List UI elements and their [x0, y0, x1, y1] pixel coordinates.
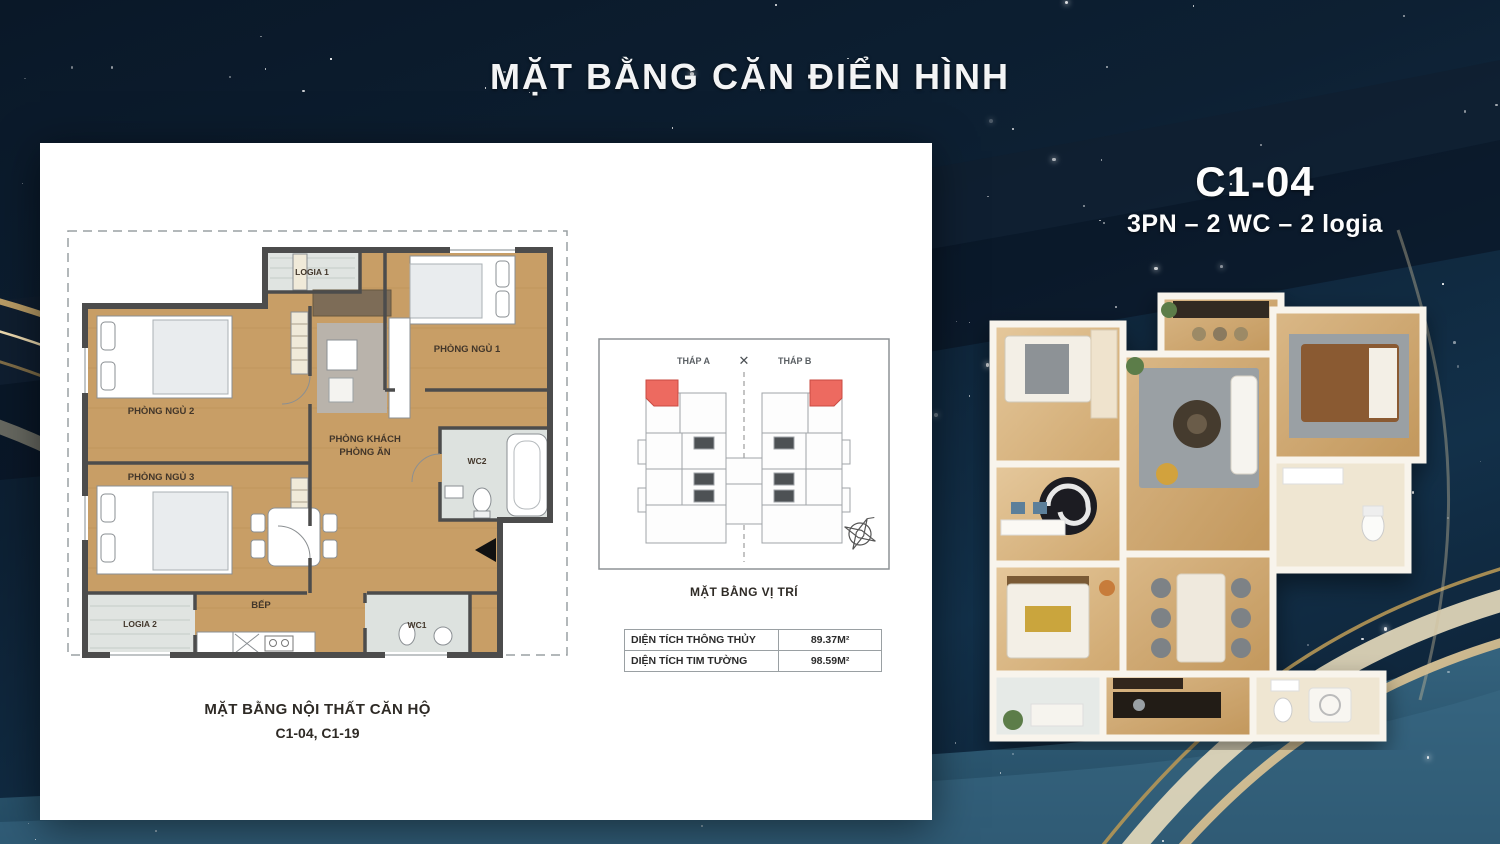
area-label: DIỆN TÍCH TIM TƯỜNG: [625, 651, 779, 672]
area-table: DIỆN TÍCH THÔNG THỦY 89.37M² DIỆN TÍCH T…: [624, 629, 882, 672]
table-row: DIỆN TÍCH THÔNG THỦY 89.37M²: [625, 630, 882, 651]
location-plan: THÁP A ✕ THÁP B: [598, 338, 890, 570]
interior-caption: MẶT BẰNG NỘI THẤT CĂN HỘ C1-04, C1-19: [65, 701, 570, 741]
room-label-wc1: WC1: [408, 620, 427, 630]
room-label-logia2: LOGIA 2: [123, 619, 157, 629]
area-value: 98.59M²: [779, 651, 882, 672]
room-label-bedroom2: PHÒNG NGỦ 2: [128, 405, 195, 417]
room-label-living: PHÒNG KHÁCH: [329, 433, 401, 445]
tower-divider-icon: ✕: [739, 353, 750, 368]
room-label-bedroom1: PHÒNG NGỦ 1: [434, 343, 501, 355]
floor-plan-2d: LOGIA 1 PHÒNG NGỦ 1 PHÒNG NGỦ 2 PHÒNG NG…: [65, 228, 570, 658]
area-label: DIỆN TÍCH THÔNG THỦY: [625, 630, 779, 651]
slide-title: MẶT BẰNG CĂN ĐIỂN HÌNH: [0, 56, 1500, 98]
unit-info: C1-04 3PN – 2 WC – 2 logia: [1055, 158, 1455, 239]
floor-plan-card: LOGIA 1 PHÒNG NGỦ 1 PHÒNG NGỦ 2 PHÒNG NG…: [40, 143, 932, 820]
table-row: DIỆN TÍCH TIM TƯỜNG 98.59M²: [625, 651, 882, 672]
room-label-kitchen: BẾP: [251, 600, 271, 611]
room-label-dining: PHÒNG ĂN: [339, 446, 390, 458]
area-value: 89.37M²: [779, 630, 882, 651]
floor-plan-3d: [973, 288, 1447, 750]
room-label-wc2: WC2: [468, 456, 487, 466]
location-caption: MẶT BẰNG VỊ TRÍ: [598, 585, 890, 599]
tower-b-label: THÁP B: [778, 356, 812, 366]
unit-code: C1-04: [1055, 158, 1455, 206]
interior-caption-line2: C1-04, C1-19: [65, 725, 570, 741]
room-label-bedroom3: PHÒNG NGỦ 3: [128, 471, 195, 483]
room-label-logia1: LOGIA 1: [295, 267, 329, 277]
interior-caption-line1: MẶT BẰNG NỘI THẤT CĂN HỘ: [65, 701, 570, 718]
tower-a-label: THÁP A: [677, 356, 711, 366]
highlight-unit: [646, 380, 678, 406]
unit-spec: 3PN – 2 WC – 2 logia: [1055, 210, 1455, 239]
